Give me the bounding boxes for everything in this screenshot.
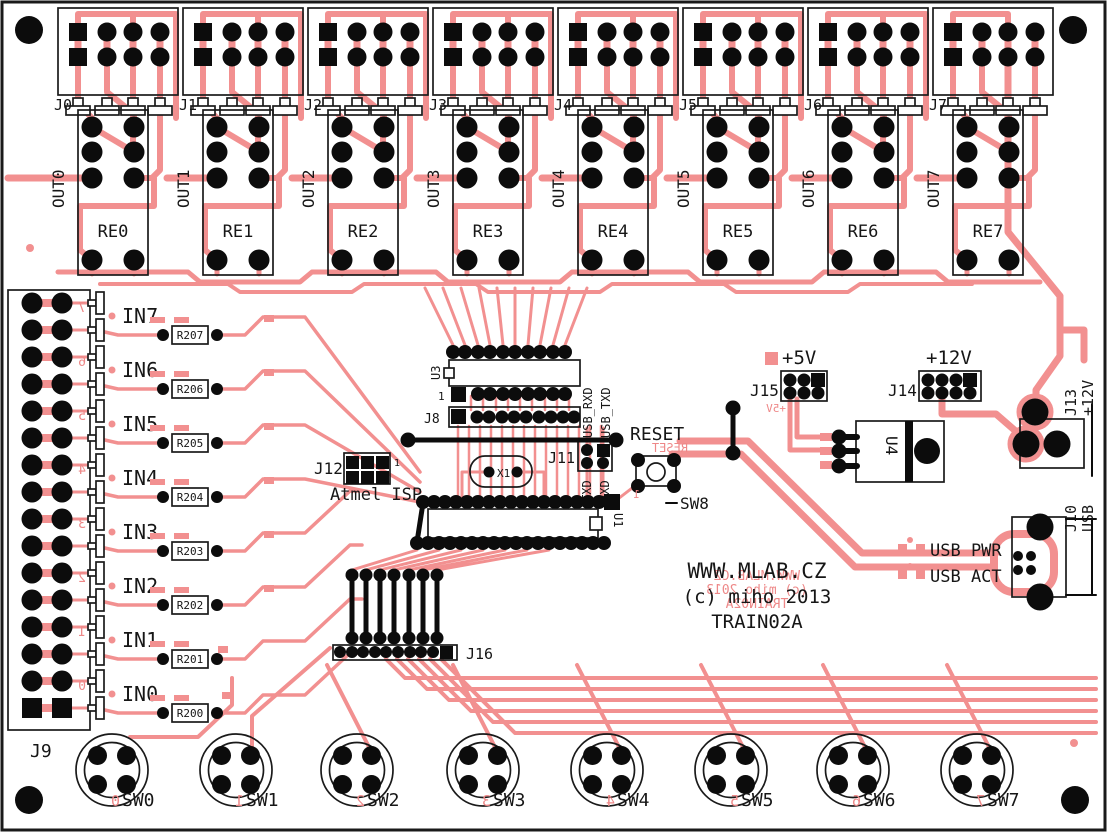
mirror-pin-digit: 1 [633,488,640,501]
net-label: OUT0 [49,169,68,208]
connector-ref: J8 [424,412,440,427]
connector-ref: J4 [554,96,572,114]
crystal-ref: X1 [497,467,510,480]
connector-ref: J16 [466,645,493,663]
mirror-pin-digit: 0 [78,679,86,694]
relay-ref: RE3 [473,222,504,242]
mirror-pin-digit: 1 [235,792,244,810]
mirror-pin-digit: 4 [606,792,615,810]
switch-ref: SW6 [863,790,896,811]
net-label: IN4 [122,466,158,490]
connector-ref: J9 [30,741,52,762]
ic-ref: U3 [429,366,443,380]
resistor-ref: R206 [177,383,204,396]
relay-ref: RE2 [348,222,379,242]
net-label: +5V [782,347,816,369]
net-label: OUT2 [299,169,318,208]
mounting-hole [1061,786,1089,814]
net-label: IN3 [122,520,158,544]
net-label: IN6 [122,358,158,382]
connector-ref: J14 [888,381,917,400]
mirror-pin-digit: 2 [78,571,86,586]
net-label: OUT4 [549,169,568,208]
net-label: +12V [926,347,972,369]
connector-ref: J2 [304,96,322,114]
led-label-usb-pwr: USB PWR [930,541,1002,561]
connector-ref: J12 [314,459,343,478]
mirror-pin-digit: 4 [78,463,86,478]
resistor-ref: R201 [177,653,204,666]
pcb-layout-view: J0 OUT0 RE0 J1 OUT1 RE1 J2 OUT2 RE2 J3 O… [0,0,1107,832]
relay-ref: RE4 [598,222,629,242]
isp-label: Atmel ISP [330,485,422,505]
net-label: IN0 [122,682,158,706]
mirror-pin-digit: 7 [78,301,86,316]
net-label: OUT3 [424,169,443,208]
net-label: IN7 [122,304,158,328]
switch-ref: SW1 [246,790,279,811]
net-label: OUT5 [674,169,693,208]
connector-ref: J1 [179,96,197,114]
connector-ref: J3 [429,96,447,114]
pin1-marker: 1 [438,390,445,403]
switch-ref: SW5 [741,790,774,811]
mounting-hole [1059,16,1087,44]
mounting-hole [15,16,43,44]
mirror-net-label: +5V [766,402,786,415]
mirror-reset-label: RESET [652,441,688,455]
connector-ref: J7 [929,96,947,114]
switch-ref: SW2 [367,790,400,811]
net-label: IN2 [122,574,158,598]
net-label: OUT7 [924,169,943,208]
net-label: OUT6 [799,169,818,208]
resistor-ref: R202 [177,599,204,612]
net-label: USB_TXD [599,387,613,438]
net-label: OUT1 [174,169,193,208]
pcb-board: J0 OUT0 RE0 J1 OUT1 RE1 J2 OUT2 RE2 J3 O… [0,0,1107,832]
switch-ref: SW7 [987,790,1020,811]
net-label: IN1 [122,628,158,652]
mirror-pin-digit: 3 [482,792,491,810]
connector-ref: J6 [804,96,822,114]
resistor-ref: R200 [177,707,204,720]
board-name-label: TRAIN02A [711,611,803,633]
relay-ref: RE1 [223,222,254,242]
mirror-pin-digit: 6 [852,792,861,810]
resistor-ref: R203 [177,545,204,558]
resistor-ref: R204 [177,491,204,504]
net-label: +12V [1079,380,1097,416]
net-label: IN5 [122,412,158,436]
switch-ref: SW3 [493,790,526,811]
mirror-pin-digit: 5 [730,792,739,810]
mounting-hole [15,786,43,814]
switch-ref: SW4 [617,790,650,811]
mirror-pin-digit: 1 [78,625,86,640]
mirror-pin-digit: 5 [78,409,86,424]
site-label: WWW.MLAB.CZ [687,559,826,583]
relay-ref: RE7 [973,222,1004,242]
switch-ref: SW0 [122,790,155,811]
ic-ref: U4 [882,436,901,455]
copyright-label: (c) miho 2013 [683,586,832,608]
pin1-marker: 1 [394,458,400,469]
net-label: USB_RXD [581,387,595,438]
led-label-usb-act: USB ACT [930,567,1002,587]
relay-ref: RE5 [723,222,754,242]
resistor-ref: R207 [177,329,204,342]
connector-ref: J5 [679,96,697,114]
relay-ref: RE6 [848,222,879,242]
mirror-pin-digit: 6 [78,355,86,370]
mirror-pin-digit: 7 [976,792,985,810]
mirror-pin-digit: 0 [111,792,120,810]
switch-ref: SW8 [680,494,709,513]
mirror-pin-digit: 2 [356,792,365,810]
connector-ref: J0 [54,96,72,114]
connector-ref: J13 [1062,389,1080,416]
mirror-pin-digit: 3 [78,517,86,532]
connector-ref: J15 [750,381,779,400]
relay-ref: RE0 [98,222,129,242]
connector-ref: J11 [548,449,575,467]
resistor-ref: R205 [177,437,204,450]
ic-ref: U1 [611,513,625,527]
